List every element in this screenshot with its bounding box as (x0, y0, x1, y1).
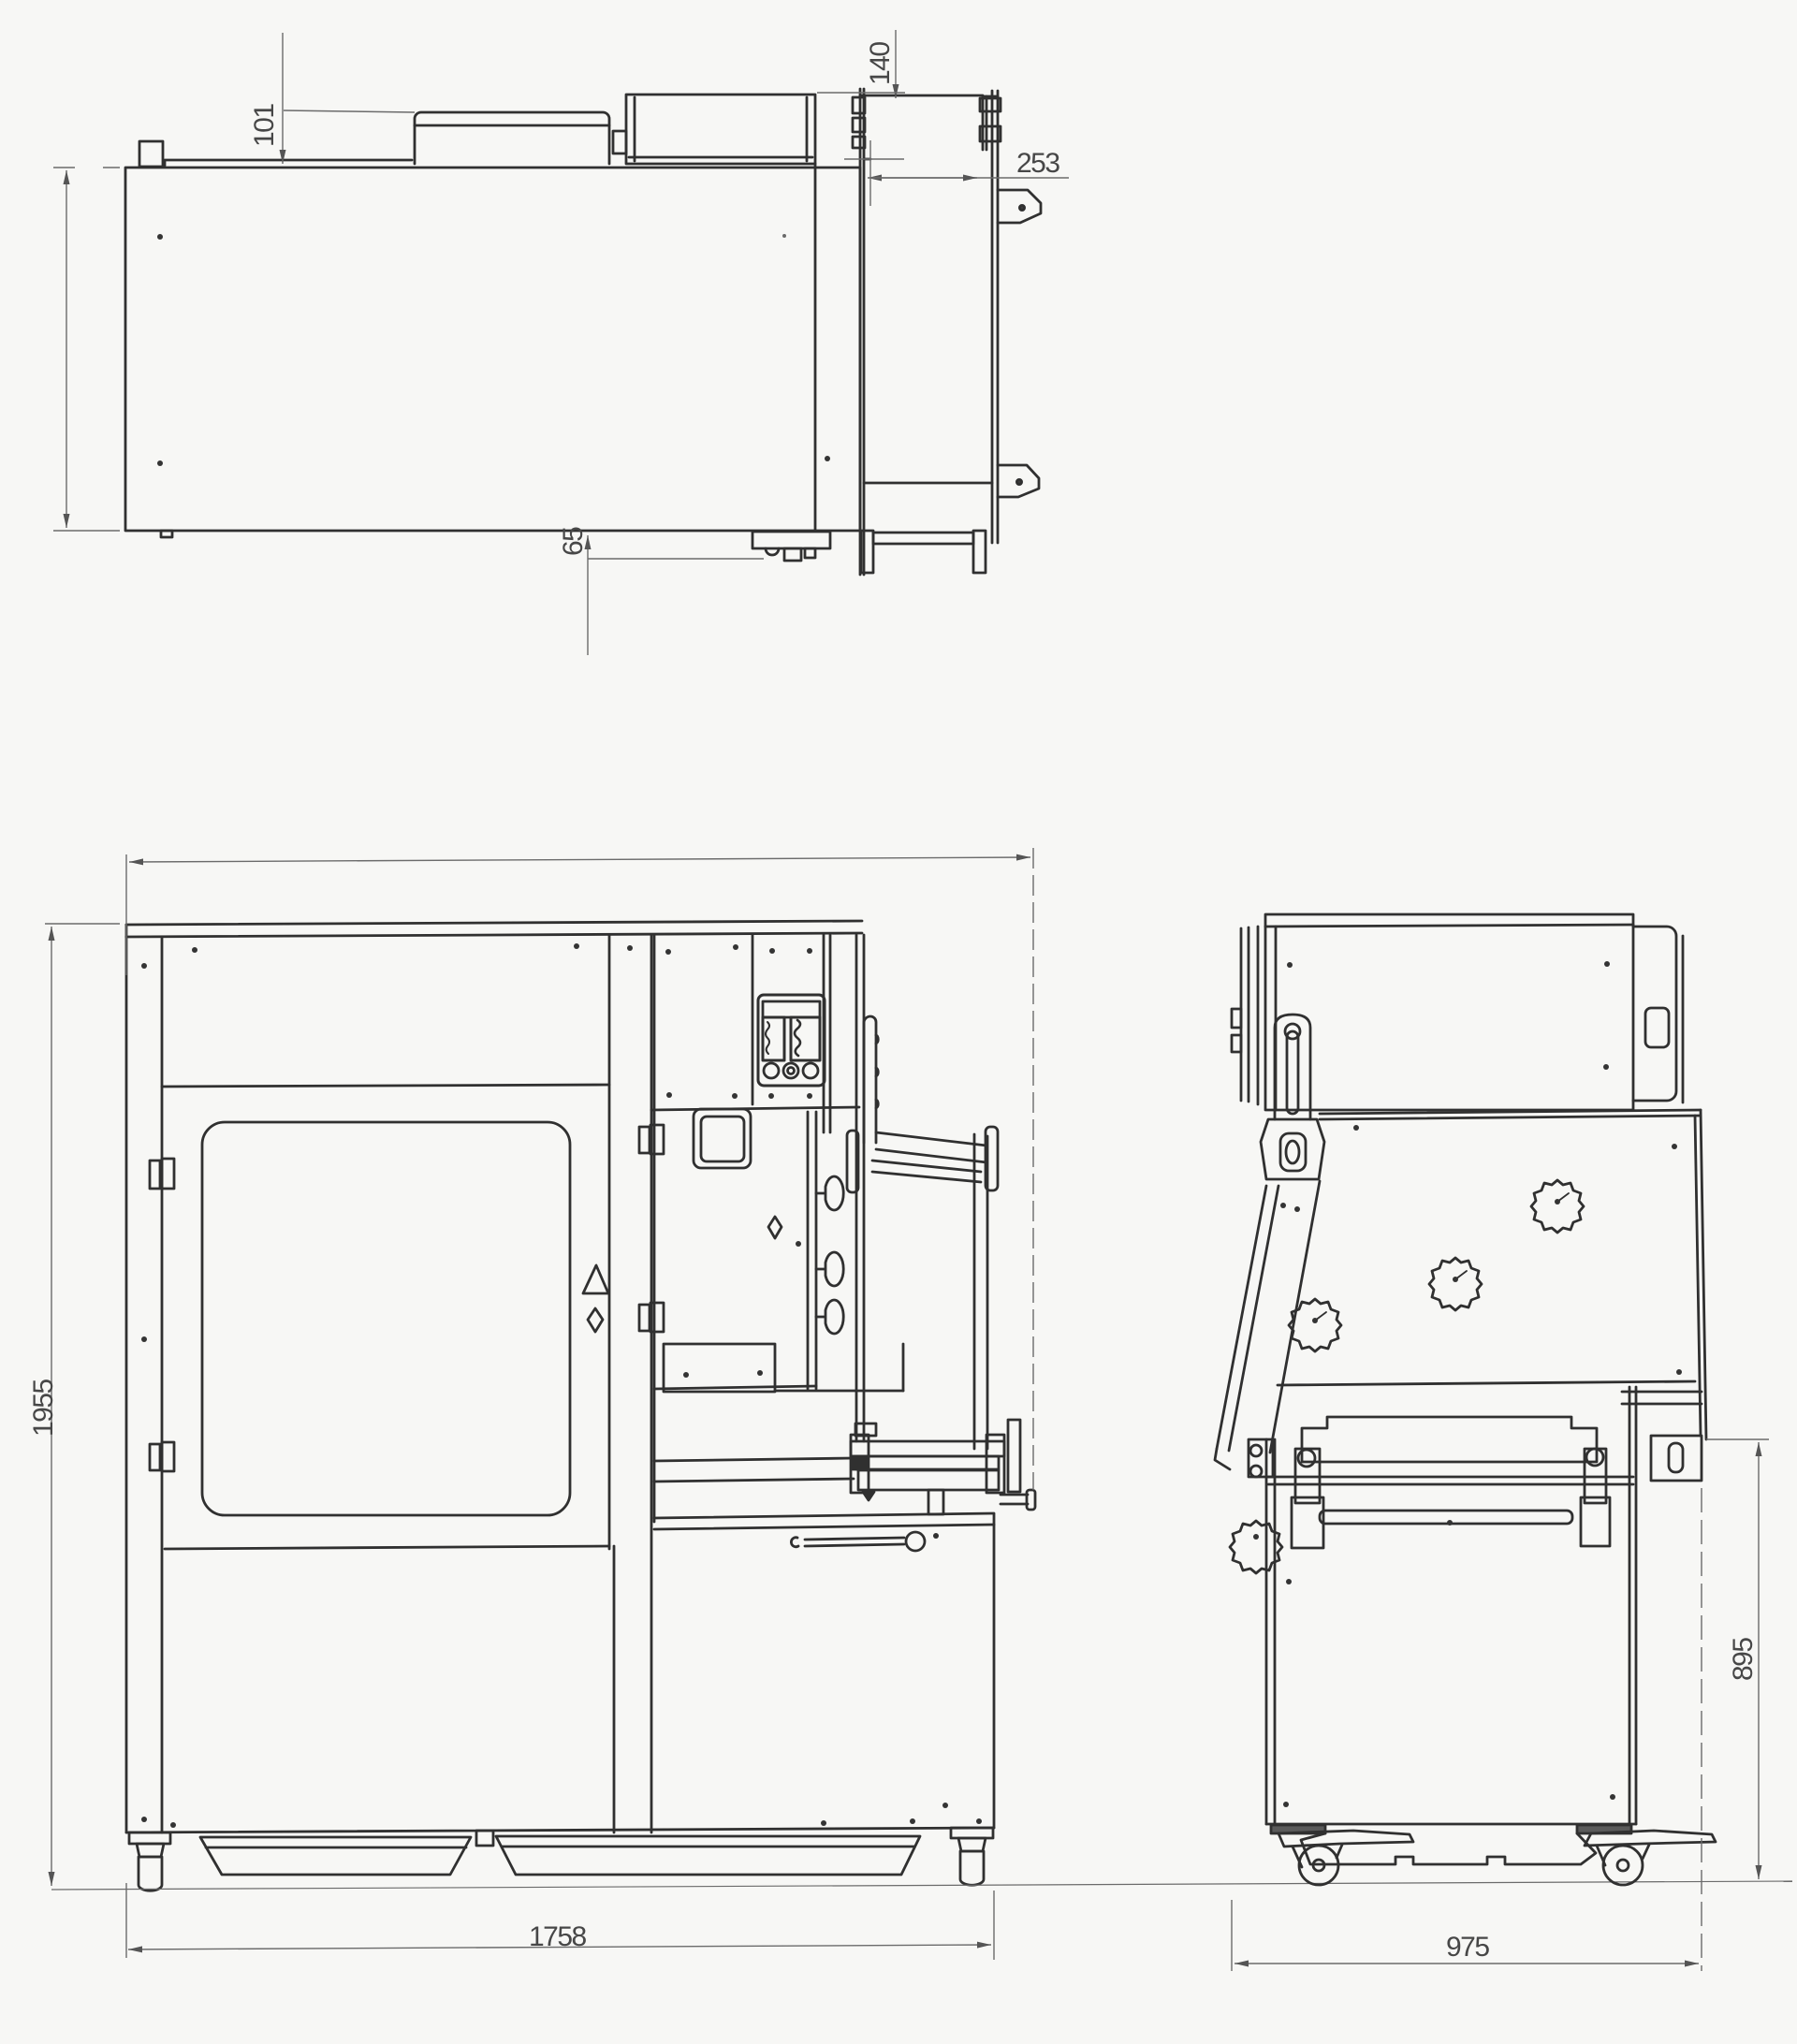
svg-text:975: 975 (1446, 1932, 1489, 1963)
svg-text:253: 253 (1016, 148, 1059, 179)
svg-text:895: 895 (1728, 1638, 1759, 1681)
svg-text:140: 140 (865, 42, 896, 85)
svg-text:65: 65 (558, 527, 589, 556)
svg-text:1955: 1955 (28, 1379, 59, 1437)
svg-text:101: 101 (249, 104, 280, 147)
svg-text:1758: 1758 (529, 1921, 587, 1952)
